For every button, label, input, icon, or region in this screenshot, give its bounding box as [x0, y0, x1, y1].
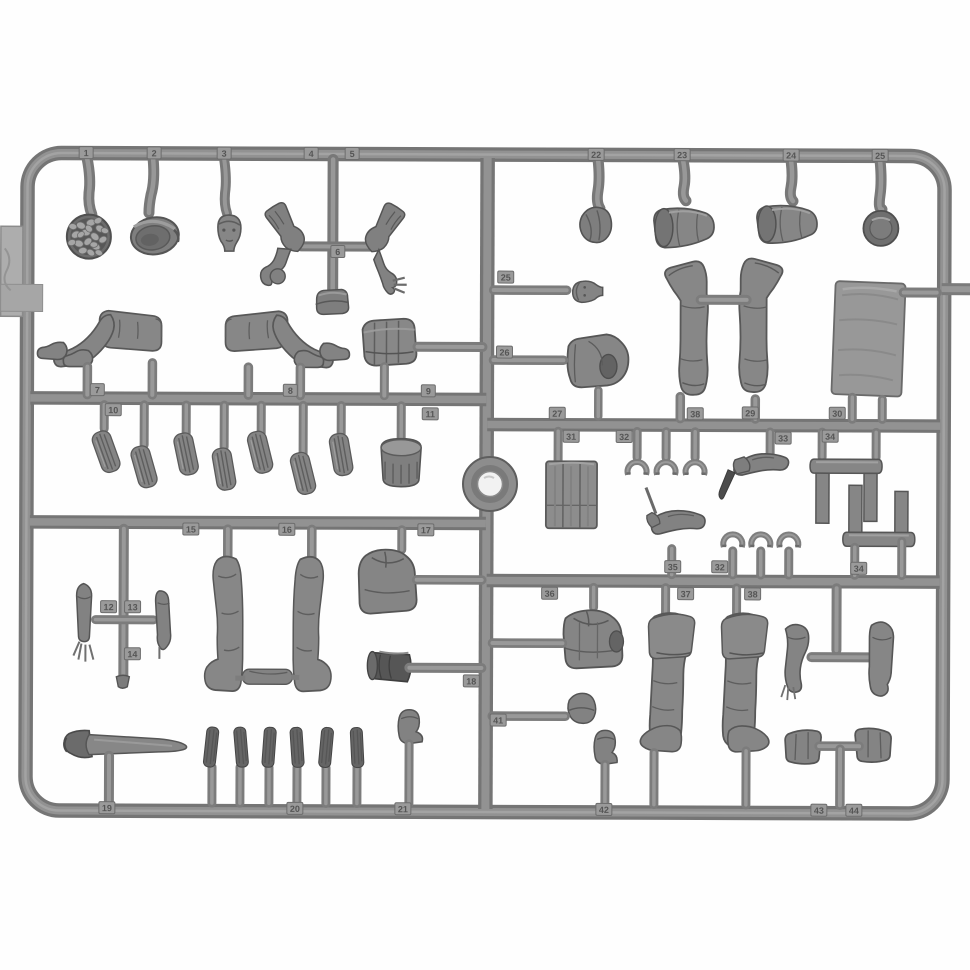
svg-text:14: 14 — [127, 649, 137, 659]
svg-text:35: 35 — [668, 562, 678, 572]
svg-text:38: 38 — [690, 409, 700, 419]
svg-text:11: 11 — [425, 409, 435, 419]
svg-text:25: 25 — [501, 273, 511, 283]
svg-text:2: 2 — [152, 148, 157, 158]
svg-text:17: 17 — [421, 525, 431, 535]
svg-text:12: 12 — [104, 602, 114, 612]
svg-text:21: 21 — [398, 804, 408, 814]
svg-text:13: 13 — [128, 602, 138, 612]
svg-text:37: 37 — [681, 589, 691, 599]
svg-text:7: 7 — [95, 385, 100, 395]
svg-text:32: 32 — [619, 432, 629, 442]
svg-text:34: 34 — [854, 564, 864, 574]
svg-text:1: 1 — [84, 148, 89, 158]
svg-text:38: 38 — [748, 589, 758, 599]
svg-text:18: 18 — [466, 676, 476, 686]
svg-text:42: 42 — [599, 805, 609, 815]
svg-text:9: 9 — [426, 386, 431, 396]
svg-text:30: 30 — [832, 409, 842, 419]
svg-text:33: 33 — [778, 434, 788, 444]
svg-text:27: 27 — [552, 409, 562, 419]
svg-text:19: 19 — [102, 803, 112, 813]
svg-text:5: 5 — [350, 149, 355, 159]
svg-text:34: 34 — [825, 432, 835, 442]
svg-text:31: 31 — [566, 432, 576, 442]
svg-text:4: 4 — [309, 149, 314, 159]
svg-text:32: 32 — [715, 562, 725, 572]
svg-text:20: 20 — [290, 804, 300, 814]
svg-text:6: 6 — [335, 247, 340, 257]
svg-text:8: 8 — [288, 386, 293, 396]
svg-text:43: 43 — [814, 806, 824, 816]
svg-text:41: 41 — [493, 716, 503, 726]
svg-text:26: 26 — [499, 348, 509, 358]
svg-text:3: 3 — [222, 149, 227, 159]
svg-text:24: 24 — [786, 151, 796, 161]
svg-text:10: 10 — [108, 405, 118, 415]
svg-text:15: 15 — [186, 524, 196, 534]
svg-text:36: 36 — [545, 589, 555, 599]
svg-text:25: 25 — [875, 151, 885, 161]
svg-text:29: 29 — [745, 408, 755, 418]
svg-text:22: 22 — [591, 150, 601, 160]
svg-text:16: 16 — [282, 525, 292, 535]
svg-text:44: 44 — [849, 806, 859, 816]
svg-text:23: 23 — [677, 150, 687, 160]
